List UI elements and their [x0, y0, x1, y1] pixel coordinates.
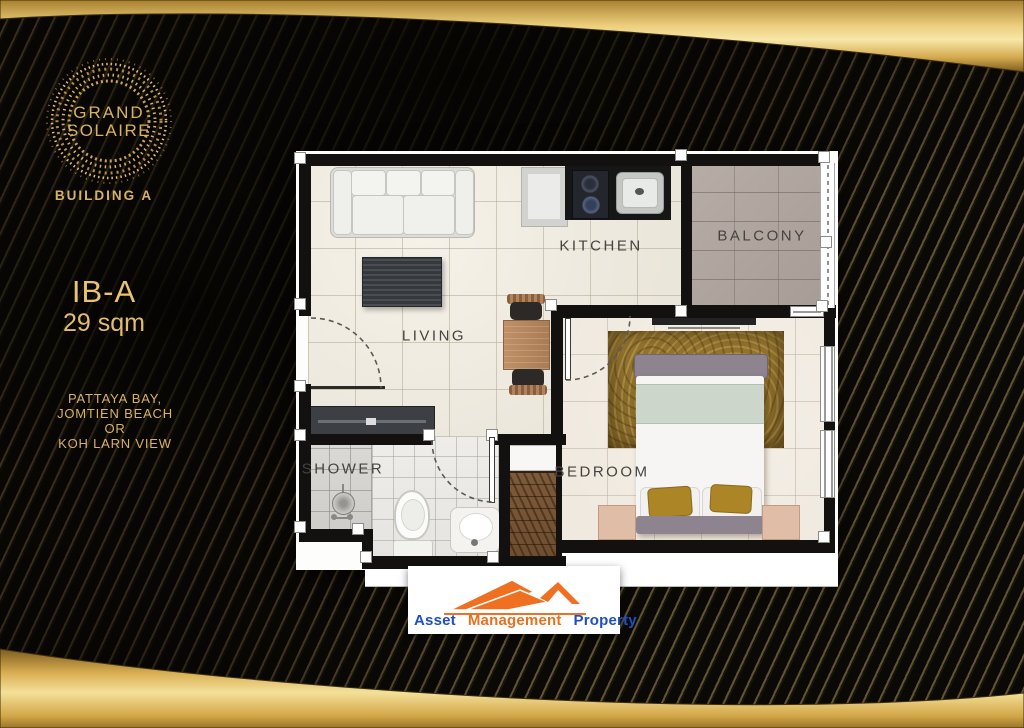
logo-word-grand: GRAND: [73, 103, 144, 122]
sofa-armrest-left: [333, 170, 352, 235]
wall-segment: [299, 154, 826, 166]
agency-word-property: Property: [574, 612, 637, 629]
shower-head-icon: [332, 492, 355, 515]
wall-joint: [487, 551, 499, 563]
bedroom-window: [820, 430, 835, 498]
wall-joint: [818, 151, 830, 163]
agency-word-management: Management: [468, 612, 562, 629]
sofa-armrest-right: [455, 170, 474, 235]
living-label: LIVING: [402, 328, 466, 345]
view-line-2: JOMTIEN BEACH: [15, 406, 215, 421]
shower-label: SHOWER: [302, 461, 385, 478]
sofa-back-cushion: [421, 170, 455, 196]
dining-chair-top: [507, 294, 545, 320]
dining-table: [503, 320, 550, 370]
agency-name: AssetManagementProperty: [408, 612, 620, 629]
entry-threshold-line: [311, 386, 385, 389]
bedroom-window: [820, 346, 835, 422]
bedroom-door-leaf: [565, 318, 571, 380]
wall-joint: [820, 236, 832, 248]
wall-joint: [294, 152, 306, 164]
wall-joint: [352, 523, 364, 535]
chair-backrest: [509, 385, 547, 395]
faucet: [471, 539, 478, 546]
wall-segment: [551, 305, 563, 445]
wall-joint: [818, 531, 830, 543]
bedroom-tv-shelf: [668, 327, 740, 329]
balcony-label: BALCONY: [717, 228, 806, 245]
kitchen-label: KITCHEN: [559, 238, 642, 255]
gold-cushion: [647, 486, 693, 519]
wall-joint: [545, 299, 557, 311]
dining-chair-bottom: [509, 369, 547, 395]
wall-segment: [824, 318, 835, 348]
coffee-table: [362, 257, 442, 307]
burner: [581, 175, 599, 193]
wall-joint: [294, 380, 306, 392]
bathroom-sink-icon: [450, 507, 500, 553]
grand-solaire-logo: GRAND SOLAIRE: [38, 50, 180, 192]
chair-seat: [510, 302, 542, 320]
counter-front: [528, 174, 560, 219]
wall-segment: [299, 434, 433, 445]
wall-segment: [299, 154, 311, 316]
view-line-3: OR: [15, 421, 215, 436]
basin: [459, 513, 493, 541]
bed: [636, 376, 764, 534]
bedroom-label: BEDROOM: [554, 464, 649, 481]
shower-valve: [331, 514, 337, 520]
logo-word-solaire: SOLAIRE: [67, 121, 151, 140]
wall-joint: [675, 149, 687, 161]
wall-segment: [681, 154, 692, 318]
wall-joint: [675, 305, 687, 317]
wall-joint: [816, 300, 828, 312]
wall-segment: [299, 384, 311, 534]
wall-segment: [499, 434, 510, 569]
view-options: PATTAYA BAY, JOMTIEN BEACH OR KOH LARN V…: [15, 391, 215, 451]
wall-segment: [560, 540, 835, 553]
table-wood-grain: [504, 321, 549, 369]
sofa-seat-cushion: [403, 195, 455, 235]
tv-console-knob: [366, 418, 376, 425]
wall-joint: [423, 429, 435, 441]
kitchen-counter-white: [521, 167, 568, 227]
sofa-seat-cushion: [352, 195, 404, 235]
kitchen-sink-icon: [616, 172, 664, 214]
bathroom-door-leaf: [489, 437, 495, 503]
shower-valve: [347, 514, 353, 520]
nightstand-left: [598, 505, 636, 540]
view-line-4: KOH LARN VIEW: [15, 436, 215, 451]
bed-blanket: [636, 384, 764, 424]
wall-joint: [360, 551, 372, 563]
view-line-1: PATTAYA BAY,: [15, 391, 215, 406]
page: GRAND SOLAIRE BUILDING A IB-A 29 sqm PAT…: [0, 0, 1024, 728]
sink-drain: [635, 188, 644, 195]
agency-word-asset: Asset: [414, 612, 456, 629]
wall-joint: [294, 298, 306, 310]
bed-footboard: [636, 516, 764, 534]
sofa: [330, 167, 475, 238]
sofa-back-cushion: [351, 170, 386, 196]
tv-console: [309, 406, 435, 437]
agency-logo-box: AssetManagementProperty: [408, 566, 620, 634]
wardrobe-shelf: [506, 445, 558, 471]
mountain-logo-icon: [408, 568, 620, 618]
burner: [582, 196, 600, 214]
gold-cushion: [709, 484, 752, 514]
wardrobe: [506, 471, 558, 559]
shower-floor: [308, 443, 372, 533]
stove-icon: [572, 170, 609, 219]
wall-joint: [294, 429, 306, 441]
unit-area: 29 sqm: [4, 309, 204, 338]
wall-joint: [294, 521, 306, 533]
toilet-bowl: [401, 499, 425, 531]
nightstand-right: [762, 505, 800, 540]
unit-code: IB-A: [4, 274, 204, 310]
building-label: BUILDING A: [4, 188, 204, 203]
sofa-back-cushion: [386, 170, 421, 196]
bedroom-tv: [652, 317, 756, 325]
toilet-icon: [394, 490, 430, 540]
